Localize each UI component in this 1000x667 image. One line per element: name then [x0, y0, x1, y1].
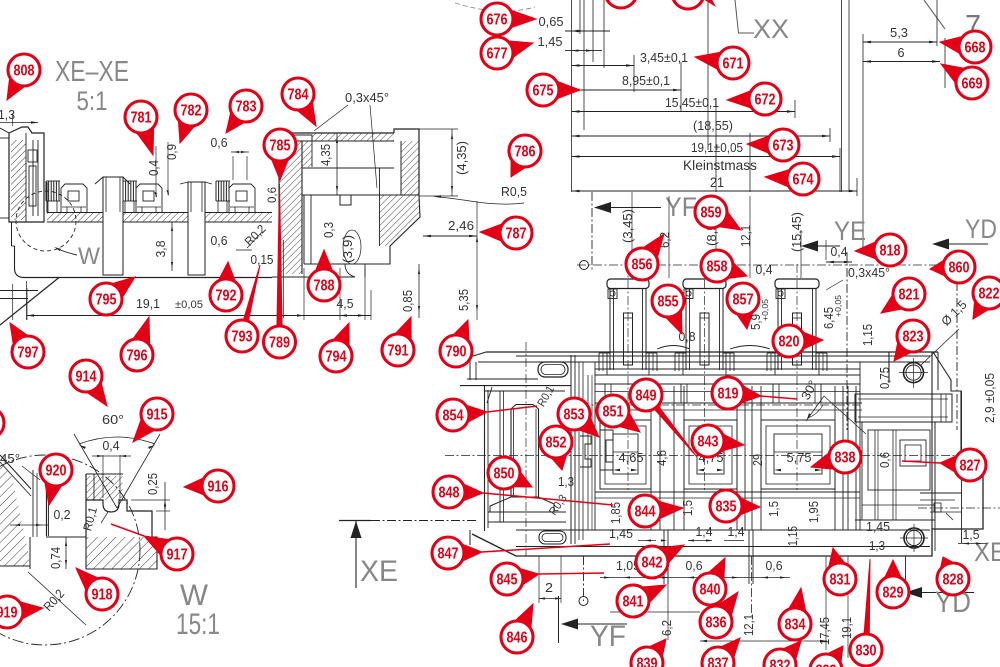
svg-text:(3,45): (3,45) — [621, 209, 635, 243]
svg-text:831: 831 — [830, 571, 851, 588]
svg-text:4,35: 4,35 — [319, 144, 333, 166]
svg-text:785: 785 — [270, 137, 291, 154]
svg-text:792: 792 — [216, 287, 237, 304]
svg-text:19,1: 19,1 — [840, 617, 854, 639]
svg-text:849: 849 — [636, 387, 657, 404]
svg-text:XE: XE — [360, 555, 398, 588]
svg-text:786: 786 — [515, 143, 536, 160]
svg-text:915: 915 — [147, 406, 168, 423]
svg-text:668: 668 — [965, 39, 986, 56]
svg-text:833: 833 — [816, 662, 837, 667]
svg-text:832: 832 — [770, 657, 791, 667]
svg-text:835: 835 — [716, 498, 737, 515]
svg-text:797: 797 — [18, 344, 39, 361]
svg-text:YE: YE — [834, 216, 866, 246]
svg-text:1,45: 1,45 — [866, 520, 890, 534]
svg-text:5,35: 5,35 — [457, 289, 471, 311]
svg-text:848: 848 — [439, 484, 460, 501]
svg-text:820: 820 — [779, 333, 800, 350]
svg-text:918: 918 — [92, 586, 113, 603]
svg-text:W: W — [78, 243, 100, 270]
svg-text:821: 821 — [899, 286, 920, 303]
svg-text:796: 796 — [127, 347, 148, 364]
svg-text:1,15: 1,15 — [786, 526, 800, 546]
svg-text:XX: XX — [753, 14, 789, 44]
svg-text:(4,35): (4,35) — [455, 141, 469, 175]
svg-text:YD: YD — [965, 214, 997, 244]
svg-text:19,1±0,05: 19,1±0,05 — [691, 140, 743, 155]
svg-text:0,4: 0,4 — [831, 245, 848, 259]
svg-text:827: 827 — [960, 457, 981, 474]
svg-text:2,46: 2,46 — [448, 218, 474, 233]
svg-text:12,1: 12,1 — [742, 614, 756, 636]
svg-text:784: 784 — [288, 86, 309, 103]
svg-text:1,45: 1,45 — [538, 34, 563, 49]
svg-text:673: 673 — [773, 137, 794, 154]
svg-text:YF: YF — [590, 620, 626, 653]
svg-text:0,9: 0,9 — [165, 144, 179, 160]
svg-text:793: 793 — [232, 328, 253, 345]
svg-text:5,3: 5,3 — [890, 25, 908, 40]
svg-text:675: 675 — [533, 82, 554, 99]
svg-text:829: 829 — [883, 584, 904, 601]
svg-text:818: 818 — [880, 242, 901, 259]
svg-text:791: 791 — [388, 342, 409, 359]
svg-text:1,3: 1,3 — [558, 475, 574, 489]
svg-text:846: 846 — [507, 629, 528, 646]
svg-text:914: 914 — [76, 368, 97, 385]
svg-text:828: 828 — [943, 571, 964, 588]
svg-text:6,2: 6,2 — [660, 620, 674, 636]
svg-text:841: 841 — [623, 593, 644, 610]
svg-text:5,75: 5,75 — [787, 450, 812, 465]
svg-text:783: 783 — [236, 98, 257, 115]
svg-text:0,6: 0,6 — [211, 136, 228, 150]
svg-text:1,4: 1,4 — [696, 525, 713, 539]
svg-text:790: 790 — [446, 343, 467, 360]
svg-text:845: 845 — [497, 571, 518, 588]
svg-text:920: 920 — [46, 462, 67, 479]
svg-text:±0,05: ±0,05 — [175, 299, 203, 311]
svg-text:852: 852 — [546, 434, 567, 451]
svg-text:847: 847 — [438, 545, 459, 562]
svg-text:0,4: 0,4 — [147, 160, 161, 176]
svg-text:838: 838 — [835, 449, 856, 466]
svg-text:5:1: 5:1 — [77, 86, 108, 116]
svg-text:Kleinstmass: Kleinstmass — [683, 158, 757, 173]
svg-text:837: 837 — [708, 655, 729, 667]
svg-text:858: 858 — [707, 258, 728, 275]
svg-text:808: 808 — [14, 62, 35, 79]
svg-text:1,4: 1,4 — [728, 525, 745, 539]
svg-text:677: 677 — [487, 45, 508, 62]
svg-text:857: 857 — [733, 291, 754, 308]
svg-text:+0,05: +0,05 — [833, 295, 843, 317]
svg-text:919: 919 — [0, 604, 18, 621]
svg-text:12,1: 12,1 — [739, 225, 753, 247]
svg-text:819: 819 — [718, 385, 739, 402]
svg-text:0,74: 0,74 — [49, 547, 63, 569]
svg-text:0,2: 0,2 — [54, 508, 71, 522]
svg-text:859: 859 — [701, 204, 722, 221]
svg-text:856: 856 — [632, 256, 653, 273]
svg-text:844: 844 — [635, 503, 656, 520]
svg-text:855: 855 — [658, 293, 679, 310]
svg-text:789: 789 — [269, 334, 290, 351]
svg-text:843: 843 — [698, 433, 719, 450]
svg-text:60°: 60° — [102, 412, 124, 427]
svg-text:15:1: 15:1 — [176, 608, 220, 641]
svg-text:0,4: 0,4 — [756, 263, 773, 277]
svg-text:788: 788 — [314, 277, 335, 294]
svg-text:787: 787 — [506, 225, 527, 242]
svg-text:1,15: 1,15 — [861, 324, 875, 346]
svg-text:674: 674 — [793, 171, 814, 188]
svg-text:1,45: 1,45 — [609, 527, 633, 541]
svg-text:19,1: 19,1 — [136, 296, 160, 311]
svg-text:4,65: 4,65 — [619, 450, 644, 465]
svg-text:0,6: 0,6 — [878, 452, 892, 468]
svg-text:1,5: 1,5 — [767, 501, 781, 517]
svg-text:4,6: 4,6 — [655, 450, 669, 466]
svg-text:0,25: 0,25 — [146, 473, 160, 495]
svg-text:672: 672 — [755, 91, 776, 108]
svg-text:834: 834 — [785, 616, 806, 633]
svg-text:860: 860 — [949, 259, 970, 276]
svg-text:0,4: 0,4 — [103, 439, 120, 453]
svg-text:0,3x45°: 0,3x45° — [345, 90, 389, 105]
svg-text:3,45±0,1: 3,45±0,1 — [640, 50, 688, 65]
svg-text:822: 822 — [979, 285, 1000, 302]
svg-text:0,3: 0,3 — [322, 222, 336, 238]
svg-text:(18,55): (18,55) — [693, 118, 733, 133]
svg-text:15,45±0,1: 15,45±0,1 — [665, 95, 719, 110]
svg-text:917: 917 — [167, 546, 188, 563]
svg-text:R0,5: R0,5 — [501, 184, 527, 199]
svg-text:1,95: 1,95 — [807, 501, 821, 523]
svg-text:21: 21 — [710, 175, 724, 190]
svg-text:1,3: 1,3 — [869, 539, 885, 553]
svg-text:3,8: 3,8 — [154, 240, 168, 257]
svg-text:0,15: 0,15 — [251, 253, 274, 267]
svg-text:XE–XE: XE–XE — [55, 56, 129, 88]
svg-text:676: 676 — [487, 11, 508, 28]
svg-text:0,6: 0,6 — [211, 234, 228, 248]
svg-text:0,65: 0,65 — [539, 14, 564, 29]
svg-text:795: 795 — [96, 291, 117, 308]
svg-text:839: 839 — [637, 655, 658, 667]
svg-text:YF: YF — [665, 192, 697, 222]
svg-text:781: 781 — [131, 109, 152, 126]
svg-text:851: 851 — [603, 403, 624, 420]
svg-text:29: 29 — [751, 454, 765, 466]
svg-text:794: 794 — [326, 348, 347, 365]
svg-text:+0,05: +0,05 — [760, 299, 770, 321]
svg-text:782: 782 — [181, 102, 202, 119]
svg-text:0,75: 0,75 — [878, 367, 892, 389]
svg-text:853: 853 — [564, 406, 585, 423]
svg-text:830: 830 — [856, 642, 877, 659]
svg-text:0,85: 0,85 — [401, 290, 415, 312]
svg-text:823: 823 — [903, 328, 924, 345]
svg-text:836: 836 — [706, 614, 727, 631]
svg-text:0,3x45°: 0,3x45° — [848, 266, 890, 280]
svg-text:671: 671 — [723, 55, 744, 72]
svg-text:8,95±0,1: 8,95±0,1 — [622, 73, 670, 88]
svg-text:2: 2 — [545, 581, 553, 595]
svg-text:6: 6 — [898, 45, 905, 60]
svg-text:4,5: 4,5 — [337, 296, 354, 311]
svg-text:916: 916 — [208, 478, 229, 495]
svg-text:45°: 45° — [0, 452, 20, 466]
svg-text:840: 840 — [700, 581, 721, 598]
svg-text:669: 669 — [962, 75, 983, 92]
svg-text:842: 842 — [642, 554, 663, 571]
svg-text:1,5: 1,5 — [963, 528, 980, 542]
svg-text:0,6: 0,6 — [265, 187, 279, 203]
svg-text:(15,45): (15,45) — [790, 212, 804, 252]
svg-text:0,6: 0,6 — [686, 559, 703, 573]
svg-text:2,9 ±0,05: 2,9 ±0,05 — [983, 373, 997, 423]
svg-text:854: 854 — [443, 407, 464, 424]
svg-text:850: 850 — [494, 465, 515, 482]
svg-text:0,6: 0,6 — [766, 559, 783, 573]
